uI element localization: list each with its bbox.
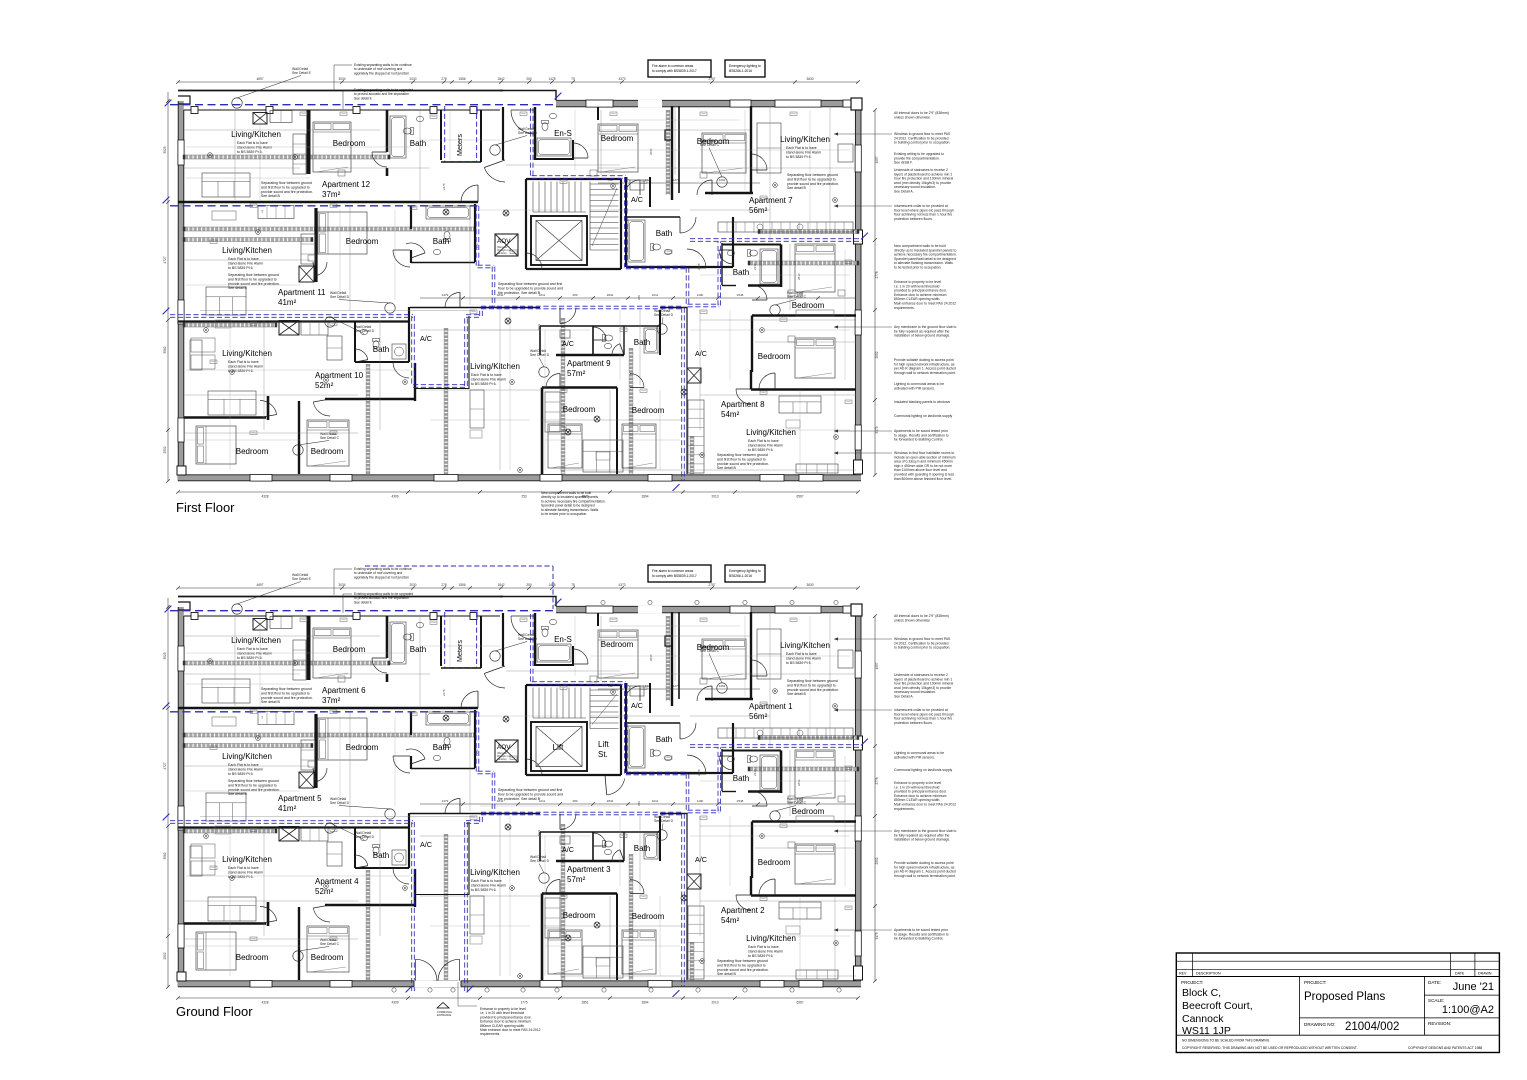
svg-text:37m²: 37m² [322,190,341,199]
svg-text:installation of below ground d: installation of below ground drainage. [894,838,950,842]
svg-text:3034: 3034 [338,583,345,587]
svg-text:See Detail A.: See Detail A. [894,695,914,699]
svg-text:4727: 4727 [163,762,167,769]
svg-text:Bedroom: Bedroom [333,645,366,654]
svg-text:Apartment 7: Apartment 7 [749,196,793,205]
svg-text:6567: 6567 [796,495,803,499]
svg-text:2028: 2028 [697,263,701,270]
svg-text:Separating floor between groun: Separating floor between ground [717,959,768,963]
svg-text:to be tested prior to occupati: to be tested prior to occupation. [894,266,942,270]
svg-text:Living/Kitchen: Living/Kitchen [222,752,272,761]
svg-text:4309: 4309 [391,495,398,499]
svg-text:3175: 3175 [875,426,879,433]
svg-text:through wall to network termin: through wall to network termination poin… [894,874,956,878]
svg-text:Separating floor between groun: Separating floor between ground [261,181,312,185]
svg-text:stand alone Fire Alarm: stand alone Fire Alarm [786,656,821,660]
svg-text:Cannock: Cannock [1182,1013,1224,1025]
svg-text:2478: 2478 [442,183,446,190]
svg-text:DESCRIPTION: DESCRIPTION [1196,972,1221,976]
svg-text:See Detail D: See Detail D [654,313,674,317]
svg-text:stand alone Fire Alarm: stand alone Fire Alarm [786,150,821,154]
svg-text:4373: 4373 [618,77,625,81]
svg-text:253: 253 [521,495,527,499]
svg-text:2814: 2814 [797,273,801,280]
svg-text:2552: 2552 [163,446,167,453]
svg-text:250: 250 [526,583,532,587]
svg-text:See detail F.: See detail F. [894,161,913,165]
svg-text:5011: 5011 [537,829,541,836]
svg-text:Each Flat is to have: Each Flat is to have [748,945,779,949]
svg-text:requirements.: requirements. [894,807,915,811]
svg-text:Bath: Bath [410,139,426,148]
svg-text:1556: 1556 [458,583,465,587]
svg-text:unless shown otherwise: unless shown otherwise [894,115,930,119]
svg-text:Bedroom: Bedroom [792,807,825,816]
svg-text:250: 250 [526,77,532,81]
svg-text:Living/Kitchen: Living/Kitchen [222,855,272,864]
svg-text:2778: 2778 [875,777,879,784]
svg-text:to BS 5839 Pt 6.: to BS 5839 Pt 6. [228,266,254,270]
svg-text:Apartment 9: Apartment 9 [567,359,611,368]
svg-text:See Detail D: See Detail D [330,295,350,299]
svg-text:Bedroom: Bedroom [758,352,791,361]
svg-text:Apartment 5: Apartment 5 [278,794,322,803]
svg-text:requirements.: requirements. [480,1032,500,1036]
svg-text:2552: 2552 [875,857,879,864]
svg-text:See Detail E: See Detail E [292,71,312,75]
svg-text:to BS 5839 Pt 6.: to BS 5839 Pt 6. [228,369,254,373]
svg-text:Each Flat is to have: Each Flat is to have [228,360,259,364]
svg-text:278: 278 [441,583,447,587]
svg-text:Living/Kitchen: Living/Kitchen [222,246,272,255]
svg-text:Living/Kitchen: Living/Kitchen [780,641,830,650]
svg-text:Bedroom: Bedroom [632,912,665,921]
svg-text:4957: 4957 [875,156,879,163]
svg-text:Separating floor between groun: Separating floor between ground [261,687,312,691]
svg-text:4373: 4373 [618,583,625,587]
svg-text:See detail B: See detail B [261,194,281,198]
svg-text:to BS 5839 Pt 6.: to BS 5839 Pt 6. [228,875,254,879]
svg-text:1011: 1011 [652,799,659,803]
svg-text:3630: 3630 [806,583,813,587]
svg-text:1190: 1190 [697,799,704,803]
svg-text:A/C: A/C [420,334,432,343]
svg-text:DATE:: DATE: [1428,980,1441,985]
svg-text:Bath: Bath [733,774,749,783]
svg-text:2036: 2036 [649,654,653,661]
svg-text:Bath: Bath [410,645,426,654]
svg-text:Living/Kitchen: Living/Kitchen [470,362,520,371]
svg-text:than 800mm above finished floo: than 800mm above finished floor level. [894,477,952,481]
svg-text:First Floor: First Floor [176,500,235,515]
svg-text:260: 260 [637,295,641,300]
svg-text:See detail B: See detail B [717,972,737,976]
svg-text:Emergency lighting to: Emergency lighting to [729,64,761,68]
svg-text:ENTRANCE: ENTRANCE [437,1013,452,1017]
svg-text:protection between floors.: protection between floors. [894,721,933,725]
svg-text:Separating floor between groun: Separating floor between ground [787,173,838,177]
svg-text:See detail B: See detail B [787,186,807,190]
svg-text:See Detail D: See Detail D [654,819,674,823]
svg-text:floor to be upgraded to provid: floor to be upgraded to provide sound an… [498,286,563,290]
svg-text:to comply with BS5839-1:2017: to comply with BS5839-1:2017 [652,69,697,73]
svg-text:Bedroom: Bedroom [792,301,825,310]
svg-text:provide sound and fire protect: provide sound and fire protection. [261,190,313,194]
svg-text:Each Flat is to have: Each Flat is to have [237,647,268,651]
svg-text:to be tested prior to occupati: to be tested prior to occupation. [541,512,587,516]
svg-text:AOV: AOV [497,238,511,245]
svg-text:1842: 1842 [497,77,504,81]
svg-text:Bedroom: Bedroom [632,406,665,415]
svg-text:41m²: 41m² [278,804,297,813]
svg-text:AOV: AOV [497,744,511,751]
svg-text:3262: 3262 [719,684,726,688]
svg-text:57m²: 57m² [567,369,586,378]
svg-text:Bath: Bath [634,844,650,853]
svg-text:to building control prior to o: to building control prior to occupation. [894,646,950,650]
svg-text:Each Flat is to have: Each Flat is to have [786,652,817,656]
svg-text:Apartment 10: Apartment 10 [315,371,364,380]
svg-text:See Detail D: See Detail D [518,131,538,135]
svg-text:3562: 3562 [163,852,167,859]
svg-text:window): window) [497,757,507,761]
svg-text:260: 260 [637,801,641,806]
svg-text:4309: 4309 [391,1001,398,1005]
svg-text:2844: 2844 [607,799,614,803]
svg-text:Apartment 8: Apartment 8 [721,400,765,409]
svg-text:2219: 2219 [753,769,757,776]
svg-text:4328: 4328 [261,1001,268,1005]
svg-text:See detail B: See detail B [261,700,281,704]
svg-text:57m²: 57m² [567,875,586,884]
svg-text:and first floor to be upgraded: and first floor to be upgraded to [787,177,836,181]
svg-text:2894: 2894 [641,1001,648,1005]
svg-text:stand alone Fire Alarm: stand alone Fire Alarm [228,364,263,368]
svg-text:See Detail D: See Detail D [355,835,375,839]
svg-text:Bedroom: Bedroom [563,405,596,414]
svg-text:1556: 1556 [458,77,465,81]
svg-text:Bedroom: Bedroom [601,134,634,143]
svg-text:Each Flat is to have: Each Flat is to have [786,146,817,150]
svg-text:21004/002: 21004/002 [1345,1021,1399,1033]
svg-text:4328: 4328 [261,495,268,499]
svg-text:Proposed Plans: Proposed Plans [1304,991,1385,1003]
svg-text:to comply with BS5839-1:2017: to comply with BS5839-1:2017 [652,574,697,578]
svg-text:and first floor to be upgraded: and first floor to be upgraded to [261,691,310,695]
svg-text:Living/Kitchen: Living/Kitchen [222,349,272,358]
svg-text:installation of below ground d: installation of below ground drainage. [894,334,950,338]
svg-text:37m²: 37m² [322,696,341,705]
svg-text:stand alone Fire Alarm: stand alone Fire Alarm [237,145,272,149]
svg-text:stand alone Fire Alarm: stand alone Fire Alarm [748,443,783,447]
svg-text:2894: 2894 [641,495,648,499]
svg-text:Fire alarm to common areas: Fire alarm to common areas [652,64,694,68]
svg-text:REV: REV [1179,972,1187,976]
svg-text:A/C: A/C [695,349,707,358]
svg-text:to BS 5839 Pt 6.: to BS 5839 Pt 6. [228,772,254,776]
svg-text:Bath: Bath [433,237,449,246]
svg-text:See Detail E: See Detail E [292,577,312,581]
svg-text:2219: 2219 [753,263,757,270]
svg-text:2552: 2552 [163,952,167,959]
svg-text:COPYRIGHT DESIGNS AND PATENTS: COPYRIGHT DESIGNS AND PATENTS ACT 1988 [1408,1046,1482,1050]
svg-text:7363: 7363 [475,749,479,756]
svg-text:and first floor to be upgraded: and first floor to be upgraded to [787,683,836,687]
svg-text:See Detail C: See Detail C [320,436,340,440]
svg-text:Bedroom: Bedroom [758,858,791,867]
svg-text:window): window) [497,251,507,255]
svg-text:280: 280 [572,293,577,297]
svg-text:provide sound and fire protect: provide sound and fire protection. [787,182,839,186]
svg-text:Bedroom: Bedroom [346,743,379,752]
svg-text:to BS 5839 Pt 6.: to BS 5839 Pt 6. [748,954,774,958]
svg-text:to BS 5839 Pt 6.: to BS 5839 Pt 6. [237,656,263,660]
svg-text:Beecroft Court,: Beecroft Court, [1182,1000,1253,1012]
svg-text:See detail E: See detail E [354,600,373,604]
svg-text:54m²: 54m² [721,916,740,925]
svg-text:75: 75 [571,77,575,81]
svg-text:56m²: 56m² [749,712,768,721]
svg-text:2548: 2548 [737,293,744,297]
svg-text:A/C: A/C [695,855,707,864]
svg-text:See Detail C: See Detail C [700,649,720,653]
svg-text:stand alone Fire Alarm: stand alone Fire Alarm [228,261,263,265]
svg-text:Lift: Lift [598,740,609,749]
svg-text:Each Flat is to have: Each Flat is to have [748,439,779,443]
svg-text:Living/Kitchen: Living/Kitchen [470,868,520,877]
svg-text:1842: 1842 [497,583,504,587]
svg-text:to BS 5839 Pt 6.: to BS 5839 Pt 6. [786,661,812,665]
svg-text:Block C,: Block C, [1182,987,1221,999]
svg-text:Each Flat is to have: Each Flat is to have [237,141,268,145]
svg-text:REVISION:: REVISION: [1428,1021,1451,1026]
svg-text:and first floor to be upgraded: and first floor to be upgraded to [228,783,277,787]
svg-text:activated with PIR sensors.: activated with PIR sensors. [894,386,935,390]
svg-text:SCALE:: SCALE: [1428,998,1444,1003]
svg-text:Bedroom: Bedroom [601,640,634,649]
svg-text:provide sound and fire protect: provide sound and fire protection. [717,968,769,972]
svg-text:Living/Kitchen: Living/Kitchen [780,135,830,144]
svg-text:Bedroom: Bedroom [563,911,596,920]
svg-text:Apartment 4: Apartment 4 [315,877,359,886]
svg-text:floor to be upgraded to provid: floor to be upgraded to provide sound an… [498,792,563,796]
svg-text:5011: 5011 [537,323,541,330]
svg-text:4957: 4957 [875,662,879,669]
svg-text:to building control prior to o: to building control prior to occupation. [894,141,950,145]
svg-text:6567: 6567 [796,1001,803,1005]
svg-text:Bedroom: Bedroom [236,953,269,962]
svg-text:Bedroom: Bedroom [236,447,269,456]
svg-text:52m²: 52m² [315,381,334,390]
svg-text:Separating floor between groun: Separating floor between ground [228,273,279,277]
svg-text:DATE: DATE [1455,972,1465,976]
svg-text:Separating floor between groun: Separating floor between ground and firs… [498,282,562,286]
svg-text:2851: 2851 [581,1001,588,1005]
svg-text:Living/Kitchen: Living/Kitchen [231,636,281,645]
svg-text:Apartment 1: Apartment 1 [749,702,793,711]
svg-text:See Detail D: See Detail D [518,637,538,641]
svg-text:Fire alarm to common areas: Fire alarm to common areas [652,569,694,573]
svg-text:and first floor to be upgraded: and first floor to be upgraded to [228,277,277,281]
svg-text:DRAWN: DRAWN [1478,972,1492,976]
svg-text:2778: 2778 [875,271,879,278]
svg-text:A/C: A/C [562,845,574,854]
svg-text:75: 75 [571,583,575,587]
svg-text:BS5266-1:2016: BS5266-1:2016 [729,69,752,73]
svg-text:2030: 2030 [409,77,416,81]
svg-text:Separating floor between groun: Separating floor between ground [228,779,279,783]
svg-text:2036: 2036 [649,148,653,155]
svg-text:protection between floors.: protection between floors. [894,217,933,221]
svg-text:St.: St. [598,750,608,759]
svg-text:stand alone Fire Alarm: stand alone Fire Alarm [471,883,506,887]
svg-text:fire protection. See detail B: fire protection. See detail B [498,797,541,801]
svg-text:Each Flat is to have: Each Flat is to have [228,866,259,870]
svg-text:Meters: Meters [455,640,464,662]
svg-text:and first floor to be upgraded: and first floor to be upgraded to [717,963,766,967]
svg-text:See detail B: See detail B [717,466,737,470]
svg-text:fire protection. See detail B: fire protection. See detail B [498,291,541,295]
svg-text:Communal lighting on landlords: Communal lighting on landlords supply [894,768,953,772]
svg-text:Apartment 12: Apartment 12 [322,180,371,189]
svg-text:41m²: 41m² [278,298,297,307]
svg-text:3034: 3034 [338,77,345,81]
svg-text:stand alone Fire Alarm: stand alone Fire Alarm [237,651,272,655]
svg-text:52m²: 52m² [315,887,334,896]
svg-text:2013: 2013 [711,495,718,499]
svg-text:4697: 4697 [256,583,263,587]
svg-text:A/C: A/C [420,840,432,849]
svg-text:Separating floor between groun: Separating floor between ground [787,679,838,683]
svg-text:DRAWING NO:: DRAWING NO: [1304,1022,1335,1027]
svg-text:stand alone Fire Alarm: stand alone Fire Alarm [748,949,783,953]
svg-text:be forwarded to Building Contr: be forwarded to Building Control. [894,438,943,442]
svg-text:to BS 5839 Pt 6.: to BS 5839 Pt 6. [786,155,812,159]
svg-text:1425: 1425 [548,77,555,81]
svg-text:provide sound and fire protect: provide sound and fire protection. [228,788,280,792]
svg-text:Ground Floor: Ground Floor [176,1004,253,1019]
svg-text:2479: 2479 [442,293,449,297]
svg-text:2030: 2030 [409,583,416,587]
svg-text:A/C: A/C [631,195,643,204]
svg-text:See detail B: See detail B [787,692,807,696]
svg-text:be forwarded to Building Contr: be forwarded to Building Control. [894,937,943,941]
svg-text:Bedroom: Bedroom [311,953,344,962]
svg-text:Bath: Bath [733,268,749,277]
svg-text:Bath: Bath [634,338,650,347]
svg-text:See Detail D: See Detail D [355,329,375,333]
svg-text:3630: 3630 [806,77,813,81]
svg-text:A/C: A/C [562,339,574,348]
svg-text:Living/Kitchen: Living/Kitchen [231,130,281,139]
svg-text:activated with PIR sensors.: activated with PIR sensors. [894,755,935,759]
svg-text:Bath: Bath [656,229,672,238]
svg-text:to BS 5839 Pt 6.: to BS 5839 Pt 6. [471,888,497,892]
svg-text:2757: 2757 [708,583,715,587]
svg-text:3262: 3262 [719,178,726,182]
svg-text:Apartment 2: Apartment 2 [721,906,765,915]
svg-text:and first floor to be upgraded: and first floor to be upgraded to [261,185,310,189]
svg-text:See Detail A.: See Detail A. [894,190,914,194]
svg-text:See Detail D: See Detail D [530,859,550,863]
svg-text:En-S: En-S [554,129,572,138]
svg-text:Bedroom: Bedroom [333,139,366,148]
svg-text:See Detail D: See Detail D [530,353,550,357]
svg-text:Living/Kitchen: Living/Kitchen [746,428,796,437]
svg-text:appriately fire stopped at roo: appriately fire stopped at roof junction [354,575,409,579]
svg-text:and first floor to be upgraded: and first floor to be upgraded to [717,457,766,461]
svg-text:provide sound and fire protect: provide sound and fire protection. [787,688,839,692]
svg-text:1:100@A2: 1:100@A2 [1442,1004,1494,1016]
svg-text:requirements.: requirements. [894,306,915,310]
svg-text:3562: 3562 [163,346,167,353]
svg-text:2479: 2479 [442,799,449,803]
svg-text:4697: 4697 [256,77,263,81]
svg-text:2548: 2548 [737,799,744,803]
svg-text:En-S: En-S [554,635,572,644]
svg-text:A/C: A/C [631,701,643,710]
svg-text:BS5266-1:2016: BS5266-1:2016 [729,574,752,578]
svg-text:Bath: Bath [373,851,389,860]
svg-text:3175: 3175 [875,932,879,939]
svg-text:to BS 5839 Pt 6.: to BS 5839 Pt 6. [748,448,774,452]
svg-text:Separating floor between groun: Separating floor between ground and firs… [498,788,562,792]
svg-text:3525: 3525 [163,652,167,659]
svg-text:2028: 2028 [697,769,701,776]
svg-text:PROJECT:: PROJECT: [1304,980,1326,985]
svg-text:Apartment 6: Apartment 6 [322,686,366,695]
svg-text:See Detail C: See Detail C [320,942,340,946]
svg-text:Lift: Lift [553,743,564,752]
svg-text:4727: 4727 [163,256,167,263]
svg-text:Each Flat is to have: Each Flat is to have [471,373,502,377]
svg-text:Meters: Meters [455,134,464,156]
svg-text:provide sound and fire protect: provide sound and fire protection. [717,462,769,466]
svg-text:1011: 1011 [652,293,659,297]
svg-text:Apartment 3: Apartment 3 [567,865,611,874]
svg-text:2844: 2844 [607,293,614,297]
svg-text:provide sound and fire protect: provide sound and fire protection. [261,696,313,700]
svg-text:Bedroom: Bedroom [346,237,379,246]
svg-text:Apartment 11: Apartment 11 [278,288,326,297]
svg-text:3525: 3525 [163,146,167,153]
svg-text:56m²: 56m² [749,206,768,215]
svg-text:1190: 1190 [697,293,704,297]
svg-text:WS11 1JP: WS11 1JP [1182,1025,1231,1037]
svg-text:through wall to network termin: through wall to network termination poin… [894,371,956,375]
svg-text:stand alone Fire Alarm: stand alone Fire Alarm [228,767,263,771]
svg-text:Bath: Bath [433,743,449,752]
svg-text:1775: 1775 [520,1001,527,1005]
svg-text:NO DIMENSIONS TO BE SCALED FRO: NO DIMENSIONS TO BE SCALED FROM THIS DRA… [1182,1039,1270,1043]
svg-text:See detail B: See detail B [228,286,248,290]
svg-text:Emergency lighting to: Emergency lighting to [729,569,761,573]
svg-text:Bath: Bath [656,735,672,744]
svg-text:See detail E: See detail E [354,96,373,100]
svg-text:See Detail C: See Detail C [700,143,720,147]
svg-text:unless shown otherwise: unless shown otherwise [894,618,930,622]
svg-text:Each Flat is to have: Each Flat is to have [228,257,259,261]
svg-text:Living/Kitchen: Living/Kitchen [746,934,796,943]
svg-text:278: 278 [441,77,447,81]
svg-text:See detail B: See detail B [228,792,248,796]
svg-text:2478: 2478 [442,689,446,696]
svg-text:Each Flat is to have: Each Flat is to have [228,763,259,767]
svg-text:1425: 1425 [548,583,555,587]
svg-text:provide sound and fire protect: provide sound and fire protection. [228,282,280,286]
svg-text:2013: 2013 [711,1001,718,1005]
svg-text:stand alone Fire Alarm: stand alone Fire Alarm [228,870,263,874]
